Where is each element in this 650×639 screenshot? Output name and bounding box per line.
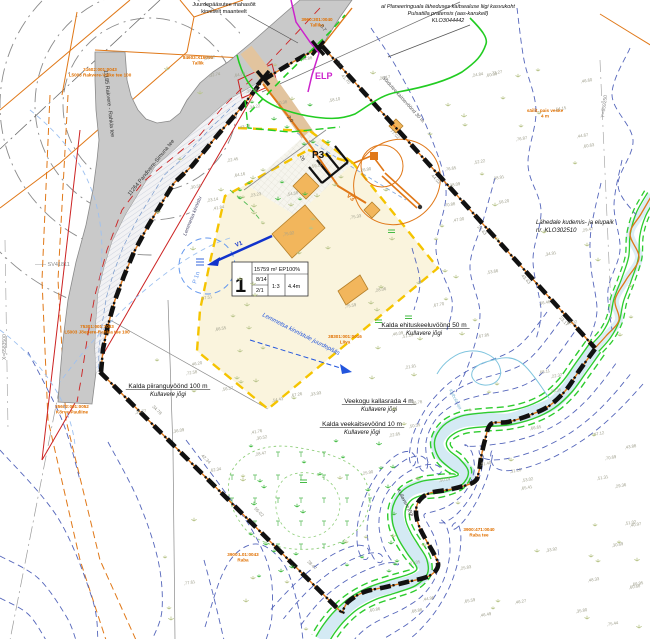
svg-text:Lähedale kudemis- ja elupaik: Lähedale kudemis- ja elupaik: [536, 220, 615, 226]
svg-text:Kalda ehituskeeluvöönd 50 m: Kalda ehituskeeluvöönd 50 m: [381, 322, 466, 329]
svg-text:15759 m² EP100%: 15759 m² EP100%: [254, 267, 300, 273]
svg-text:Veekogu kallasrada 4 m: Veekogu kallasrada 4 m: [344, 398, 413, 405]
svg-text:Juurdepääsutee mahasõit: Juurdepääsutee mahasõit: [192, 2, 256, 8]
svg-text:38301:001:0016: 38301:001:0016: [328, 334, 362, 339]
svg-text:Kõrve-Pauliine: Kõrve-Pauliine: [56, 410, 89, 415]
svg-text:35602:001:0052: 35602:001:0052: [55, 404, 89, 409]
svg-text:8/14: 8/14: [256, 277, 267, 283]
svg-text:kinniselt maanteelt: kinniselt maanteelt: [201, 9, 247, 15]
svg-text:Kalda veekaitsevöönd 10 m: Kalda veekaitsevöönd 10 m: [322, 421, 402, 428]
svg-text:L5003 Jõepere-Rahkla tee 100: L5003 Jõepere-Rahkla tee 100: [64, 330, 130, 335]
svg-text:Kullavere jõgi: Kullavere jõgi: [361, 407, 398, 413]
svg-text:75301:001:7063: 75301:001:7063: [80, 324, 114, 329]
svg-text:ELP: ELP: [315, 71, 333, 81]
svg-text:31602:001:0043: 31602:001:0043: [83, 67, 117, 72]
svg-text:al Planeeringuala läheduses ka: al Planeeringuala läheduses kaitsealuse …: [381, 4, 515, 10]
svg-text:1: 1: [235, 275, 246, 297]
svg-text:Kullavere jõgi: Kullavere jõgi: [344, 430, 381, 436]
svg-text:Tallik: Tallik: [192, 61, 204, 66]
svg-text:L5003 Rakvere-Väike tee 100: L5003 Rakvere-Väike tee 100: [69, 73, 132, 78]
svg-text:Kullavere jõgi: Kullavere jõgi: [150, 392, 187, 398]
svg-text:3900:471:0040: 3900:471:0040: [463, 527, 495, 532]
svg-text:Pulsatilla pratensis (aas-karu: Pulsatilla pratensis (aas-karukell): [408, 11, 489, 17]
svg-text:nr. KLO302510: nr. KLO302510: [536, 228, 577, 234]
svg-text:Kalda piiranguvöönd 100 m: Kalda piiranguvöönd 100 m: [128, 383, 207, 390]
svg-text:1:3: 1:3: [272, 284, 280, 290]
svg-text:—— SV41811: —— SV41811: [35, 262, 70, 268]
svg-text:3960:301:0040: 3960:301:0040: [301, 17, 333, 22]
svg-text:Raba: Raba: [237, 558, 249, 563]
svg-text:X=6583500: X=6583500: [2, 334, 8, 360]
svg-text:Liiva: Liiva: [340, 340, 351, 345]
svg-text:KLO3044442: KLO3044442: [432, 18, 464, 24]
svg-text:4 m: 4 m: [541, 114, 549, 119]
svg-text:3900:L01:0043: 3900:L01:0043: [227, 552, 259, 557]
svg-text:Raba tee: Raba tee: [469, 533, 489, 538]
svg-text:2/1: 2/1: [256, 288, 264, 294]
svg-text:4.4m: 4.4m: [288, 284, 301, 290]
svg-text:P3: P3: [312, 150, 325, 161]
